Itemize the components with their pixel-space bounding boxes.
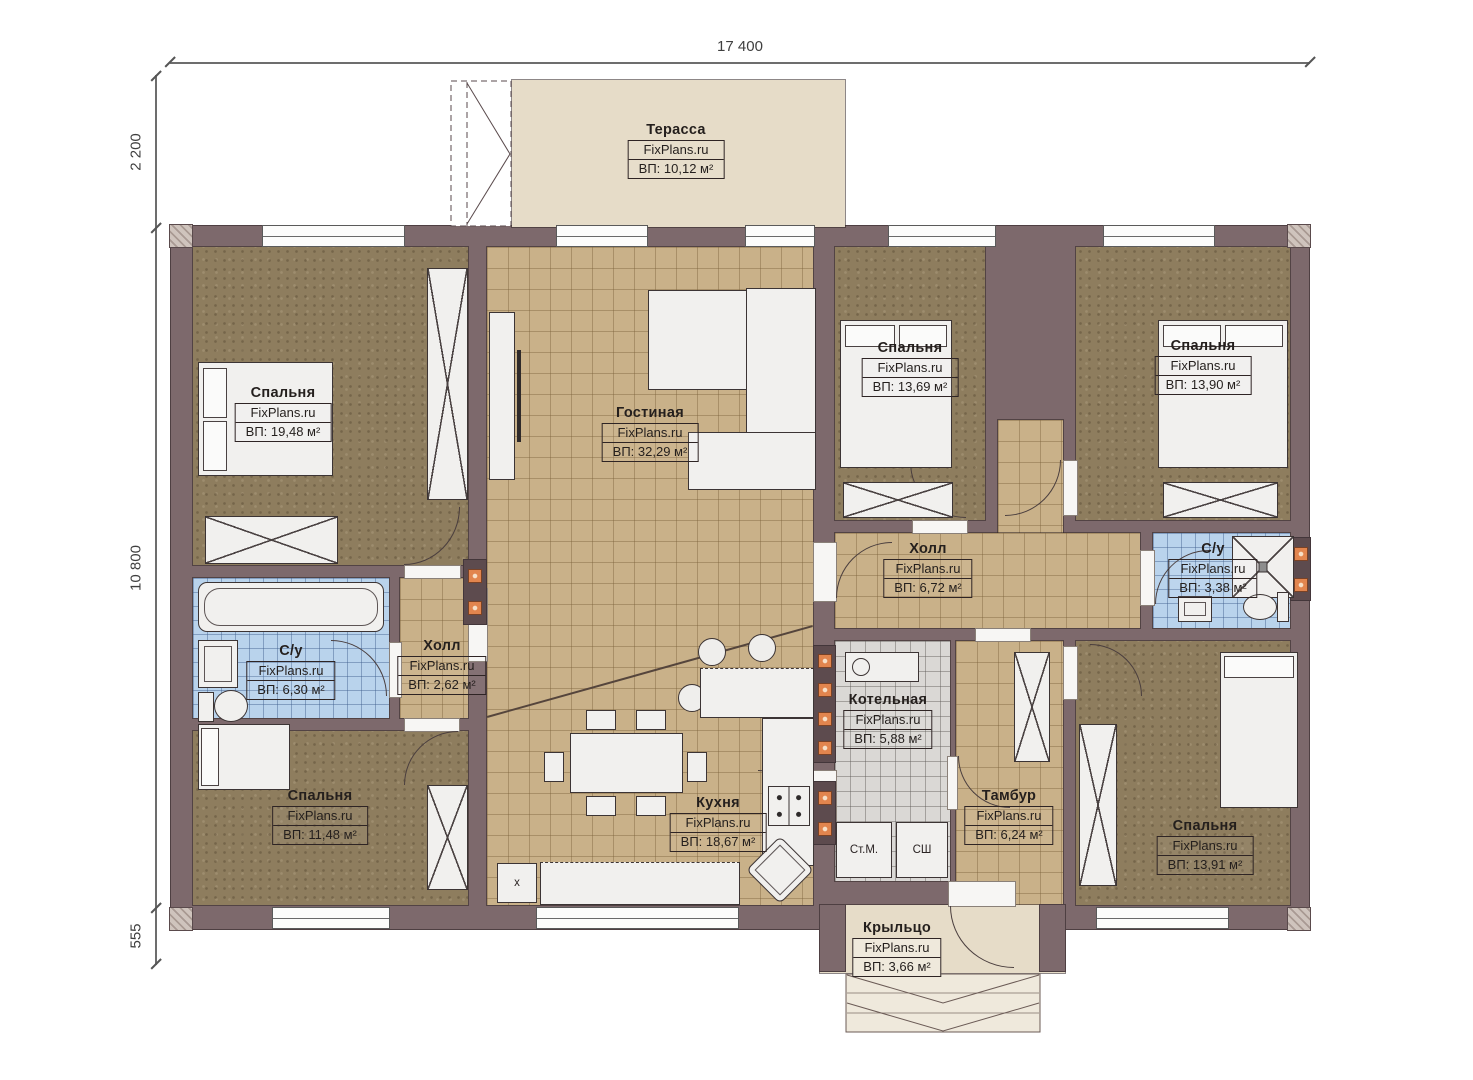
sink [1178,596,1212,622]
wardrobe [427,785,468,890]
dimension-label-terrace-depth: 2 200 [128,133,145,171]
pillow [203,368,227,418]
wall-marker-patch [814,782,835,844]
watermark: FixPlans.ru [863,359,958,378]
window [536,907,739,929]
outlet-marker-icon [1294,578,1308,592]
washing-machine: Ст.М. [836,822,892,878]
room-name: Спальня [235,385,332,401]
entrance-door-opening [948,881,1016,907]
tv-stand [489,312,515,480]
watermark: FixPlans.ru [273,807,367,826]
outlet-marker-icon [468,601,482,615]
watermark: FixPlans.ru [1169,560,1256,579]
room-name: Кухня [670,795,767,811]
room-label-bedroom-tl: Спальня FixPlans.ruВП: 19,48 м² [235,385,332,442]
floor-plan-canvas: 17 400 2 200 10 800 555 [0,0,1473,1080]
window [1103,225,1215,247]
wardrobe [1079,724,1117,886]
boiler-unit [845,652,919,682]
porch-wall-stub [820,905,845,971]
room-label-bedroom-tr: Спальня FixPlans.ruВП: 13,90 м² [1155,338,1252,395]
dimension-line-top [170,62,1310,64]
sink [198,640,238,688]
wardrobe [427,268,468,500]
bathtub [198,582,384,632]
door-opening [813,542,837,602]
room-label-bathroom-small: С/у FixPlans.ruВП: 3,38 м² [1168,541,1257,598]
watermark: FixPlans.ru [629,141,724,160]
washing-machine-label: Ст.М. [850,844,878,856]
bar-stool [748,634,776,662]
watermark: FixPlans.ru [236,404,331,423]
door-opening [1063,646,1078,700]
room-name: С/у [1168,541,1257,557]
tv [517,350,521,442]
room-name: Холл [397,638,486,654]
wall-marker-patch [464,560,486,624]
room-area: ВП: 5,88 м² [844,730,931,748]
watermark: FixPlans.ru [965,807,1052,826]
dimension-line-left [155,75,157,965]
room-name: Спальня [272,788,368,804]
wardrobe [1163,482,1278,518]
fridge: x [497,863,537,903]
window [745,225,815,247]
watermark: FixPlans.ru [603,424,698,443]
room-name: Тамбур [964,788,1053,804]
door-opening [404,718,460,732]
porch-wall-stub [1040,905,1065,971]
room-area: ВП: 3,66 м² [853,958,940,976]
toilet-tank [1277,592,1289,622]
door-opening [404,565,461,579]
room-name: Спальня [1155,338,1252,354]
room-label-kitchen: Кухня FixPlans.ruВП: 18,67 м² [670,795,767,852]
room-area: ВП: 18,67 м² [671,833,766,851]
terrace-door [556,225,648,247]
watermark: FixPlans.ru [1156,357,1251,376]
room-area: ВП: 13,91 м² [1158,856,1253,874]
toilet-tank [198,692,214,722]
pillow [203,421,227,471]
sofa [746,288,816,438]
watermark: FixPlans.ru [844,711,931,730]
outlet-marker-icon [818,741,832,755]
bar-counter [700,668,814,718]
room-name: Спальня [862,340,959,356]
room-name: Терасса [628,122,725,138]
outlet-marker-icon [818,822,832,836]
room-area: ВП: 13,69 м² [863,378,958,396]
watermark: FixPlans.ru [853,939,940,958]
room-name: Котельная [843,692,932,708]
dimension-label-porch-depth: 555 [128,923,145,948]
chair [586,796,616,816]
door-opening [912,520,968,534]
chair [586,710,616,730]
chair [636,796,666,816]
room-label-hall-small: Холл FixPlans.ruВП: 2,62 м² [397,638,486,695]
room-area: ВП: 13,90 м² [1156,376,1251,394]
room-area: ВП: 10,12 м² [629,160,724,178]
door-opening [1140,550,1155,606]
toilet-bowl [214,690,248,722]
room-area: ВП: 6,72 м² [884,579,971,597]
watermark: FixPlans.ru [247,662,334,681]
room-label-terrace: Терасса FixPlans.ruВП: 10,12 м² [628,122,725,179]
wall-corner-hatch [170,908,192,930]
coffee-table [648,290,748,390]
dresser [205,516,338,564]
drying-cabinet: СШ [896,822,948,878]
wall-corner-hatch [1288,225,1310,247]
outlet-marker-icon [818,791,832,805]
wall-corner-hatch [1288,908,1310,930]
chair [687,752,707,782]
stove [768,786,810,826]
room-name: С/у [246,643,335,659]
room-label-bedroom-br: Спальня FixPlans.ruВП: 13,91 м² [1157,818,1254,875]
room-area: ВП: 6,30 м² [247,681,334,699]
dimension-label-top: 17 400 [690,38,790,55]
sofa-chaise [688,432,816,490]
room-label-bedroom-center: Спальня FixPlans.ruВП: 13,69 м² [862,340,959,397]
door-opening [1063,460,1078,516]
dining-table [570,733,683,793]
porch-steps [845,973,1041,1033]
room-label-bedroom-bl: Спальня FixPlans.ruВП: 11,48 м² [272,788,368,845]
window [888,225,996,247]
room-label-tambour: Тамбур FixPlans.ruВП: 6,24 м² [964,788,1053,845]
room-label-hall-main: Холл FixPlans.ruВП: 6,72 м² [883,541,972,598]
outlet-marker-icon [818,654,832,668]
wardrobe [843,482,953,518]
room-label-boiler: Котельная FixPlans.ruВП: 5,88 м² [843,692,932,749]
window [1096,907,1229,929]
room-area: ВП: 11,48 м² [273,826,367,844]
pillow [1224,656,1294,678]
wardrobe [1014,652,1050,762]
outlet-marker-icon [818,712,832,726]
room-name: Крыльцо [852,920,941,936]
chair [544,752,564,782]
terrace-stairs [450,80,512,227]
room-area: ВП: 2,62 м² [398,676,485,694]
bar-stool [698,638,726,666]
wall-corner-hatch [170,225,192,247]
door-opening [947,756,958,810]
outlet-marker-icon [468,569,482,583]
room-name: Гостиная [602,405,699,421]
room-area: ВП: 6,24 м² [965,826,1052,844]
door-opening [975,628,1031,642]
chair [636,710,666,730]
outlet-marker-icon [818,683,832,697]
watermark: FixPlans.ru [671,814,766,833]
drying-cabinet-label: СШ [913,844,932,856]
watermark: FixPlans.ru [1158,837,1253,856]
pillow [201,728,219,786]
room-name: Холл [883,541,972,557]
window [262,225,405,247]
window [272,907,390,929]
room-label-living: Гостиная FixPlans.ruВП: 32,29 м² [602,405,699,462]
room-name: Спальня [1157,818,1254,834]
watermark: FixPlans.ru [398,657,485,676]
dimension-label-house-depth: 10 800 [128,545,145,591]
room-area: ВП: 3,38 м² [1169,579,1256,597]
watermark: FixPlans.ru [884,560,971,579]
room-area: ВП: 32,29 м² [603,443,698,461]
outlet-marker-icon [1294,547,1308,561]
fridge-mark-label: x [514,877,520,889]
wall-marker-patch [814,646,835,762]
kitchen-counter-bottom [540,862,740,905]
room-area: ВП: 19,48 м² [236,423,331,441]
room-label-bathroom-left: С/у FixPlans.ruВП: 6,30 м² [246,643,335,700]
room-label-porch: Крыльцо FixPlans.ruВП: 3,66 м² [852,920,941,977]
